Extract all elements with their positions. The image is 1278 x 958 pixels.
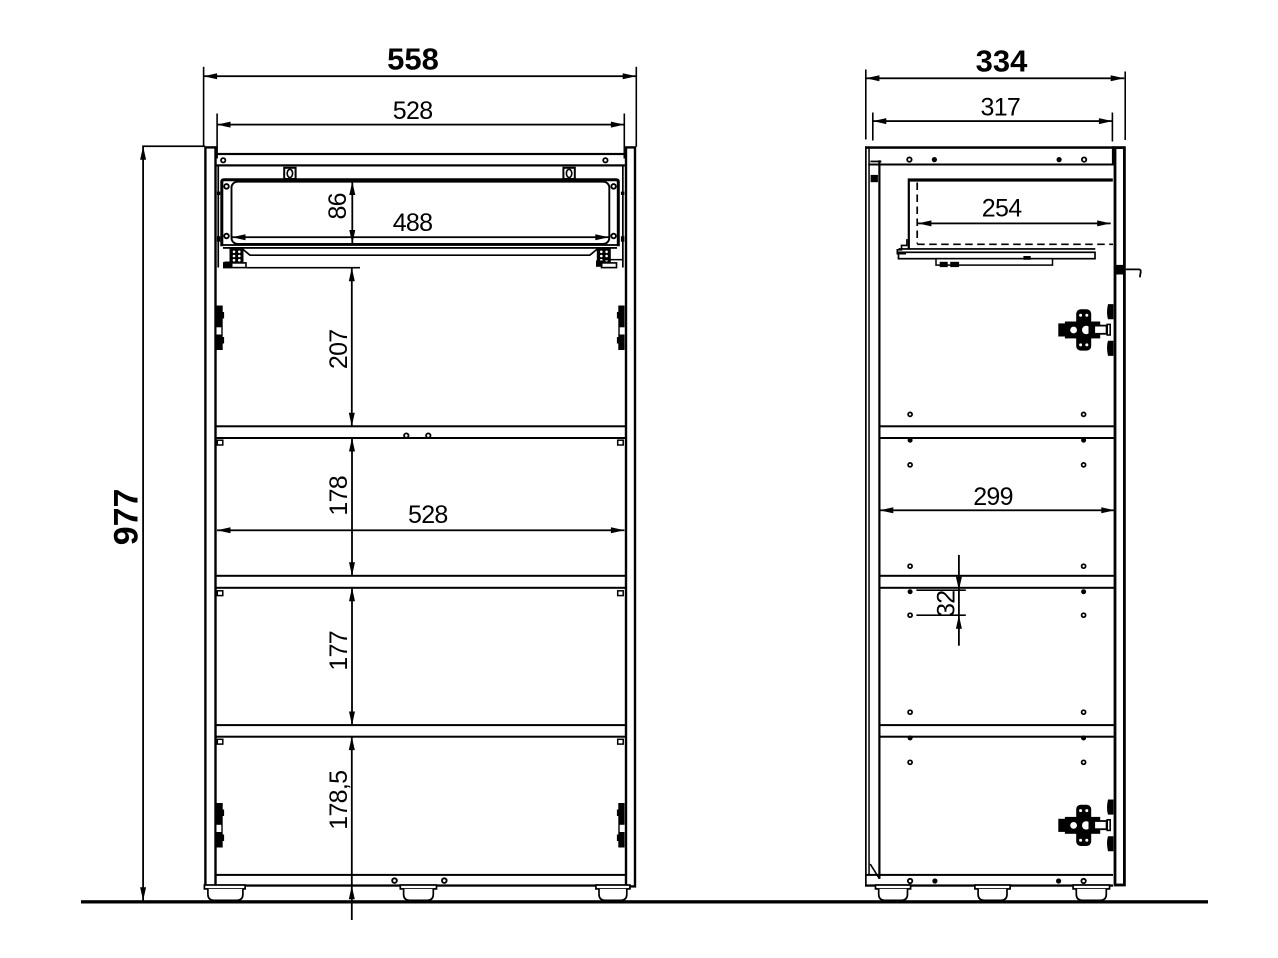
svg-text:32: 32 [933, 590, 961, 616]
svg-text:334: 334 [976, 44, 1028, 79]
svg-text:178,5: 178,5 [325, 771, 353, 830]
svg-text:977: 977 [107, 489, 145, 546]
svg-text:299: 299 [973, 483, 1013, 511]
svg-text:528: 528 [408, 501, 448, 529]
svg-text:178: 178 [325, 476, 353, 516]
svg-text:488: 488 [393, 209, 433, 237]
svg-text:558: 558 [387, 42, 439, 77]
svg-text:528: 528 [393, 97, 433, 125]
svg-text:317: 317 [980, 94, 1020, 122]
svg-text:254: 254 [982, 195, 1022, 223]
svg-text:207: 207 [325, 329, 353, 369]
svg-text:86: 86 [324, 193, 352, 219]
svg-text:177: 177 [325, 631, 353, 671]
